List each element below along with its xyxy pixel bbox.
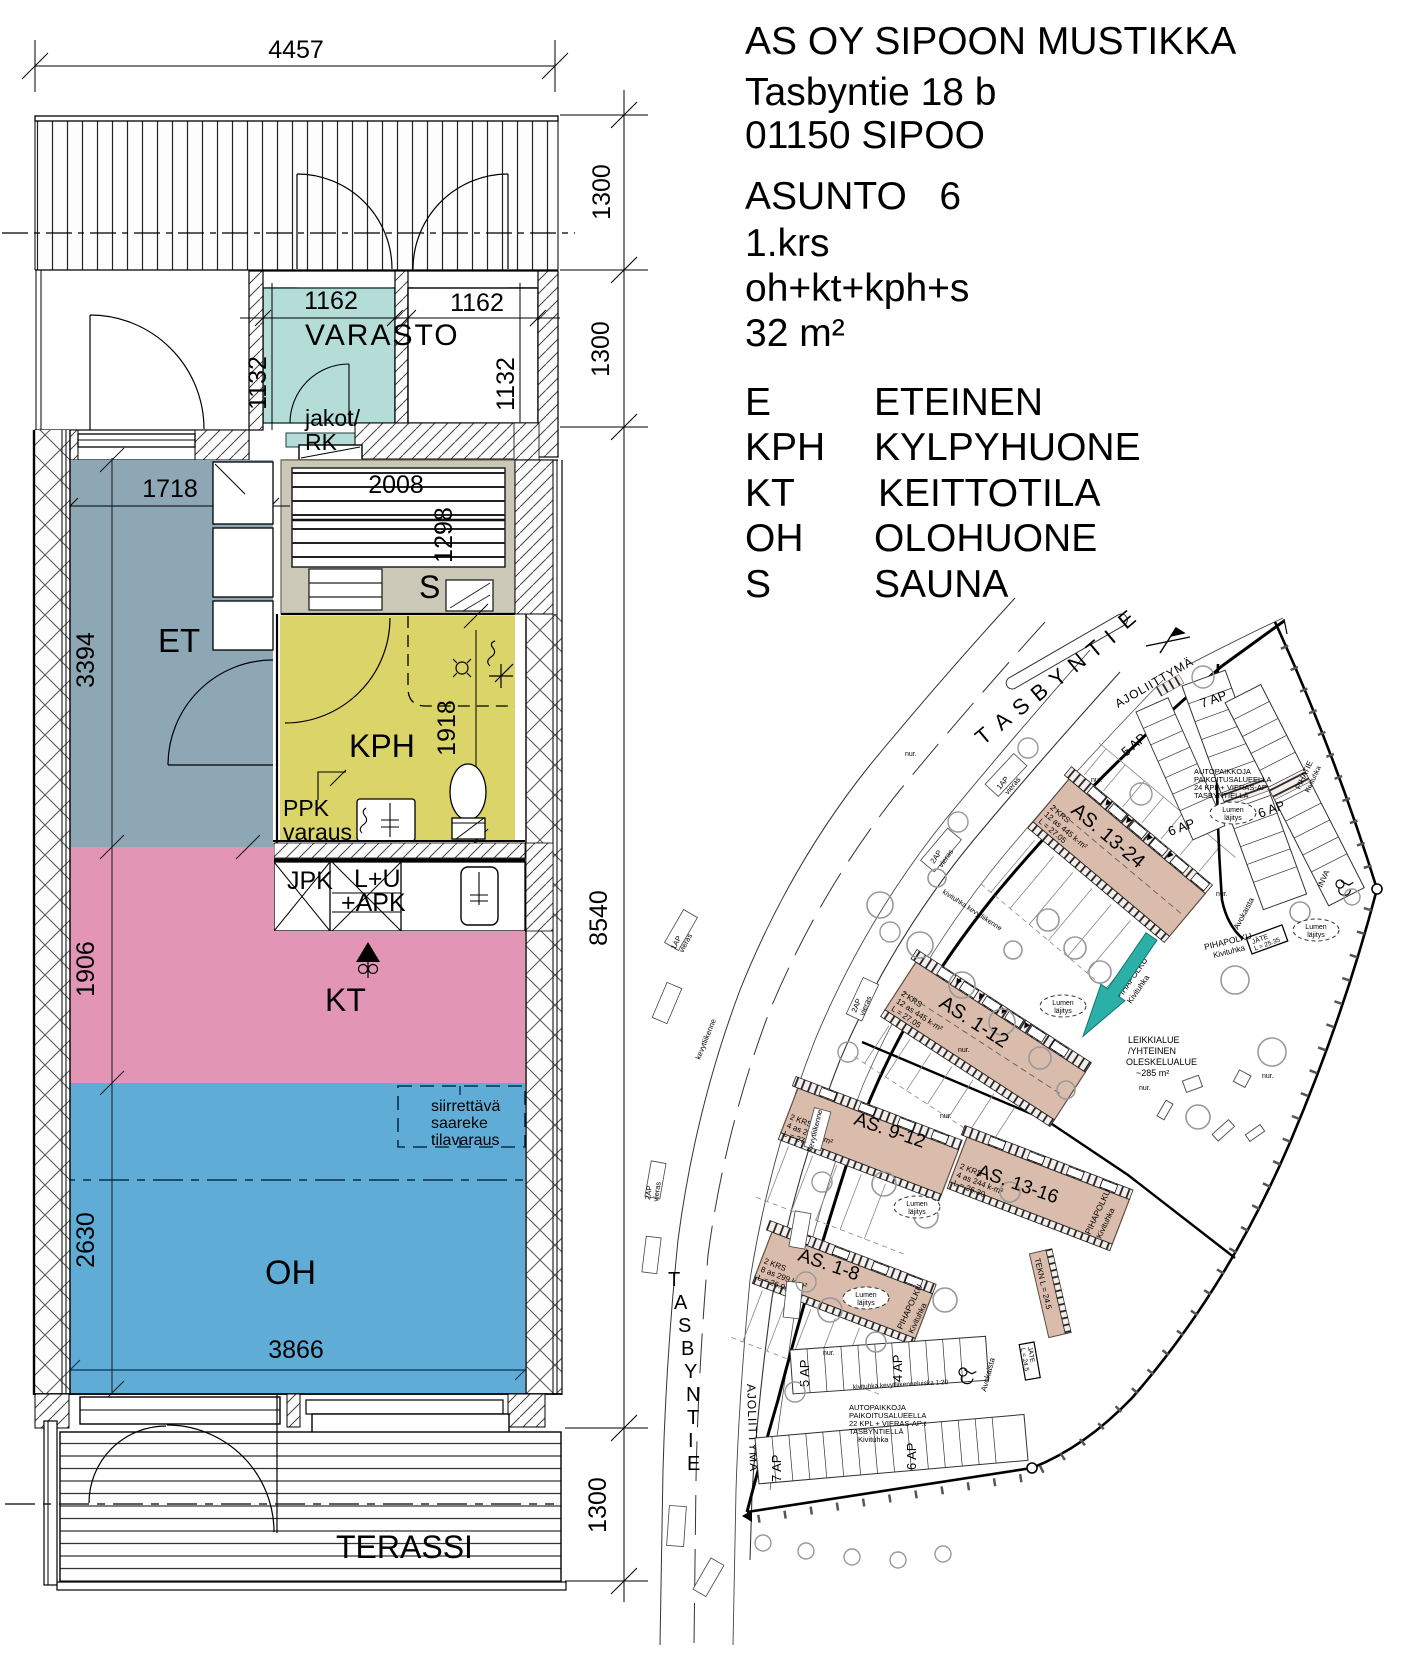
svg-text:ETEINEN: ETEINEN <box>874 381 1043 424</box>
svg-text:läjitys: läjitys <box>857 1300 875 1307</box>
svg-text:KPH: KPH <box>349 728 415 764</box>
svg-text:KEITTOTILA: KEITTOTILA <box>878 472 1101 515</box>
svg-text:JPK: JPK <box>287 867 333 895</box>
svg-text:nur.: nur. <box>940 1113 952 1120</box>
svg-text:E: E <box>687 1453 700 1475</box>
svg-text:32 m²: 32 m² <box>745 312 845 355</box>
svg-text:AS OY SIPOON MUSTIKKA: AS OY SIPOON MUSTIKKA <box>745 20 1236 63</box>
svg-text:2630: 2630 <box>72 1212 100 1268</box>
svg-text:KYLPYHUONE: KYLPYHUONE <box>874 426 1141 469</box>
svg-text:3394: 3394 <box>72 632 100 688</box>
svg-text:1298: 1298 <box>430 507 458 563</box>
svg-text:jakot/: jakot/ <box>304 405 361 431</box>
svg-text:TASBYNTIELLÄ: TASBYNTIELLÄ <box>1194 791 1248 800</box>
svg-text:tilavaraus: tilavaraus <box>431 1132 499 1149</box>
svg-text:S: S <box>678 1315 691 1337</box>
svg-text:saareke: saareke <box>431 1115 488 1132</box>
svg-text:KPH: KPH <box>745 426 825 469</box>
svg-text:1718: 1718 <box>142 475 198 503</box>
svg-text:1300: 1300 <box>584 1477 612 1533</box>
svg-text:nur.: nur. <box>823 1350 835 1357</box>
svg-text:Tasbyntie 18 b: Tasbyntie 18 b <box>745 71 997 114</box>
svg-text:Lumen: Lumen <box>1052 1000 1074 1007</box>
svg-text:nur.: nur. <box>1139 1085 1151 1092</box>
svg-text:LEIKKIALUE: LEIKKIALUE <box>1128 1035 1180 1045</box>
svg-text:PPK: PPK <box>283 795 330 821</box>
svg-text:4 AP: 4 AP <box>890 1355 905 1382</box>
svg-text:4457: 4457 <box>268 36 324 64</box>
svg-text:SAUNA: SAUNA <box>874 563 1008 606</box>
svg-text:Lumen: Lumen <box>1222 807 1244 814</box>
svg-text:3866: 3866 <box>268 1336 324 1364</box>
svg-text:1.krs: 1.krs <box>745 222 830 265</box>
svg-text:1132: 1132 <box>244 356 272 410</box>
svg-text:nur.: nur. <box>1216 891 1228 898</box>
svg-text:Kivituhka: Kivituhka <box>858 1435 889 1444</box>
svg-text:läjitys: läjitys <box>1224 815 1242 822</box>
svg-text:KT: KT <box>745 472 795 515</box>
svg-text:nur.: nur. <box>1091 777 1103 784</box>
svg-text:1918: 1918 <box>433 700 461 756</box>
svg-text:läjitys: läjitys <box>1307 932 1325 939</box>
svg-text:~285 m²: ~285 m² <box>1136 1068 1169 1078</box>
svg-text:/YHTEINEN: /YHTEINEN <box>1128 1046 1176 1056</box>
svg-text:1300: 1300 <box>588 164 616 220</box>
svg-text:+APK: +APK <box>341 889 406 917</box>
svg-text:8540: 8540 <box>585 890 613 946</box>
svg-text:läjitys: läjitys <box>908 1209 926 1216</box>
svg-text:S: S <box>419 569 440 605</box>
svg-text:T: T <box>687 1407 699 1429</box>
svg-text:siirrettävä: siirrettävä <box>431 1098 500 1115</box>
svg-text:nur.: nur. <box>958 1047 970 1054</box>
svg-text:B: B <box>681 1338 694 1360</box>
svg-text:1906: 1906 <box>72 941 100 997</box>
svg-text:T: T <box>668 1269 680 1291</box>
svg-text:1300: 1300 <box>587 321 615 377</box>
svg-text:KT: KT <box>325 982 366 1018</box>
svg-text:7 AP: 7 AP <box>769 1455 784 1482</box>
svg-text:Y: Y <box>684 1361 697 1383</box>
svg-text:TERASSI: TERASSI <box>336 1529 473 1565</box>
svg-text:ASUNTO 6: ASUNTO 6 <box>745 175 961 218</box>
svg-text:1162: 1162 <box>304 287 358 315</box>
svg-text:I: I <box>688 1430 694 1452</box>
svg-text:N: N <box>686 1384 700 1406</box>
svg-text:VARASTO: VARASTO <box>305 319 460 352</box>
svg-text:läjitys: läjitys <box>1054 1008 1072 1015</box>
svg-text:nur.: nur. <box>905 751 917 758</box>
svg-text:Lumen: Lumen <box>1305 924 1327 931</box>
svg-text:6 AP: 6 AP <box>904 1443 919 1470</box>
svg-text:01150 SIPOO: 01150 SIPOO <box>745 114 985 157</box>
svg-text:S: S <box>745 563 771 606</box>
svg-text:1132: 1132 <box>492 357 520 411</box>
svg-text:OLESKELUALUE: OLESKELUALUE <box>1126 1057 1197 1067</box>
svg-text:OH: OH <box>745 517 804 560</box>
svg-text:RK: RK <box>305 429 338 455</box>
svg-text:OH: OH <box>265 1254 316 1292</box>
svg-text:Lumen: Lumen <box>855 1292 877 1299</box>
svg-text:1162: 1162 <box>450 289 504 317</box>
svg-text:2008: 2008 <box>368 471 424 499</box>
svg-text:E: E <box>745 381 771 424</box>
svg-text:ET: ET <box>158 622 200 659</box>
svg-text:oh+kt+kph+s: oh+kt+kph+s <box>745 267 969 310</box>
svg-text:Lumen: Lumen <box>906 1201 928 1208</box>
svg-text:OLOHUONE: OLOHUONE <box>874 517 1097 560</box>
svg-text:A: A <box>674 1292 688 1314</box>
svg-text:nur.: nur. <box>1262 1073 1274 1080</box>
